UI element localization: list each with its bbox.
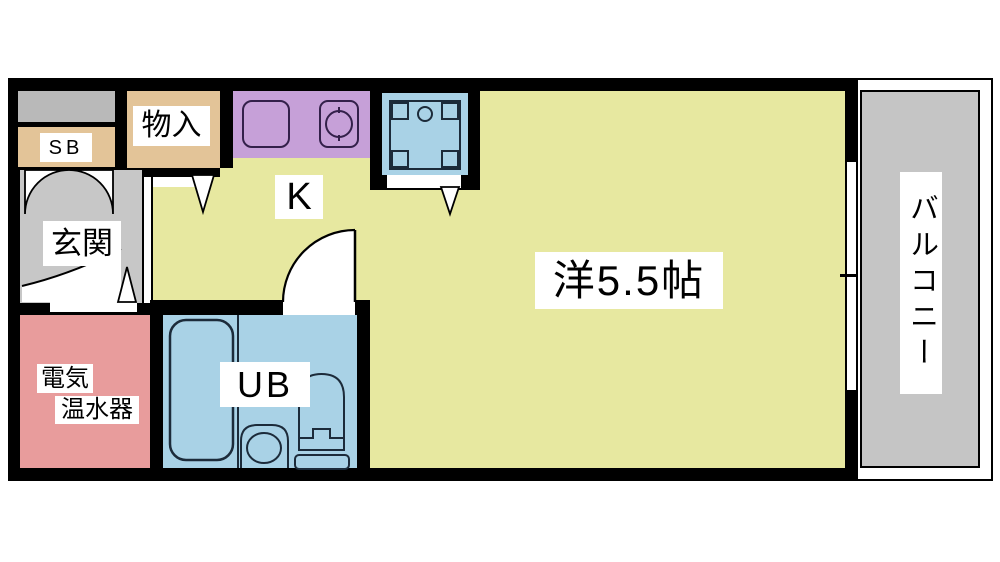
label-main-room: 洋5.5帖 [535,252,723,309]
washer-opening [387,175,461,188]
label-water-heater-2-text: 温水器 [61,398,133,422]
label-shoebox-text: SB [49,138,84,158]
label-entrance-text: 玄関 [51,228,113,259]
wall-column [220,91,233,168]
label-storage: 物入 [133,106,210,146]
label-storage-text: 物入 [142,111,202,141]
label-water-heater-1: 電気 [37,364,93,393]
label-kitchen: K [275,175,323,219]
washing-machine-area [382,93,468,175]
kitchen-counter [233,91,370,158]
label-unit-bath: UB [220,362,310,407]
label-kitchen-text: K [286,178,311,216]
label-balcony: バルコニー [900,172,942,394]
label-main-room-text: 洋5.5帖 [553,260,705,302]
meter-box [18,91,115,122]
label-water-heater-1-text: 電気 [41,367,89,391]
bath-door-sill [283,300,355,315]
label-shoebox: SB [40,133,92,162]
label-water-heater-2: 温水器 [55,396,139,424]
label-entrance: 玄関 [43,221,121,266]
label-balcony-text: バルコニー [907,193,936,373]
label-unit-bath-text: UB [237,367,293,403]
partition-wall [142,177,153,303]
floorplan-canvas: 物入 SB 玄関 K UB 電気 温水器 洋5.5帖 バルコニー [0,0,1000,562]
